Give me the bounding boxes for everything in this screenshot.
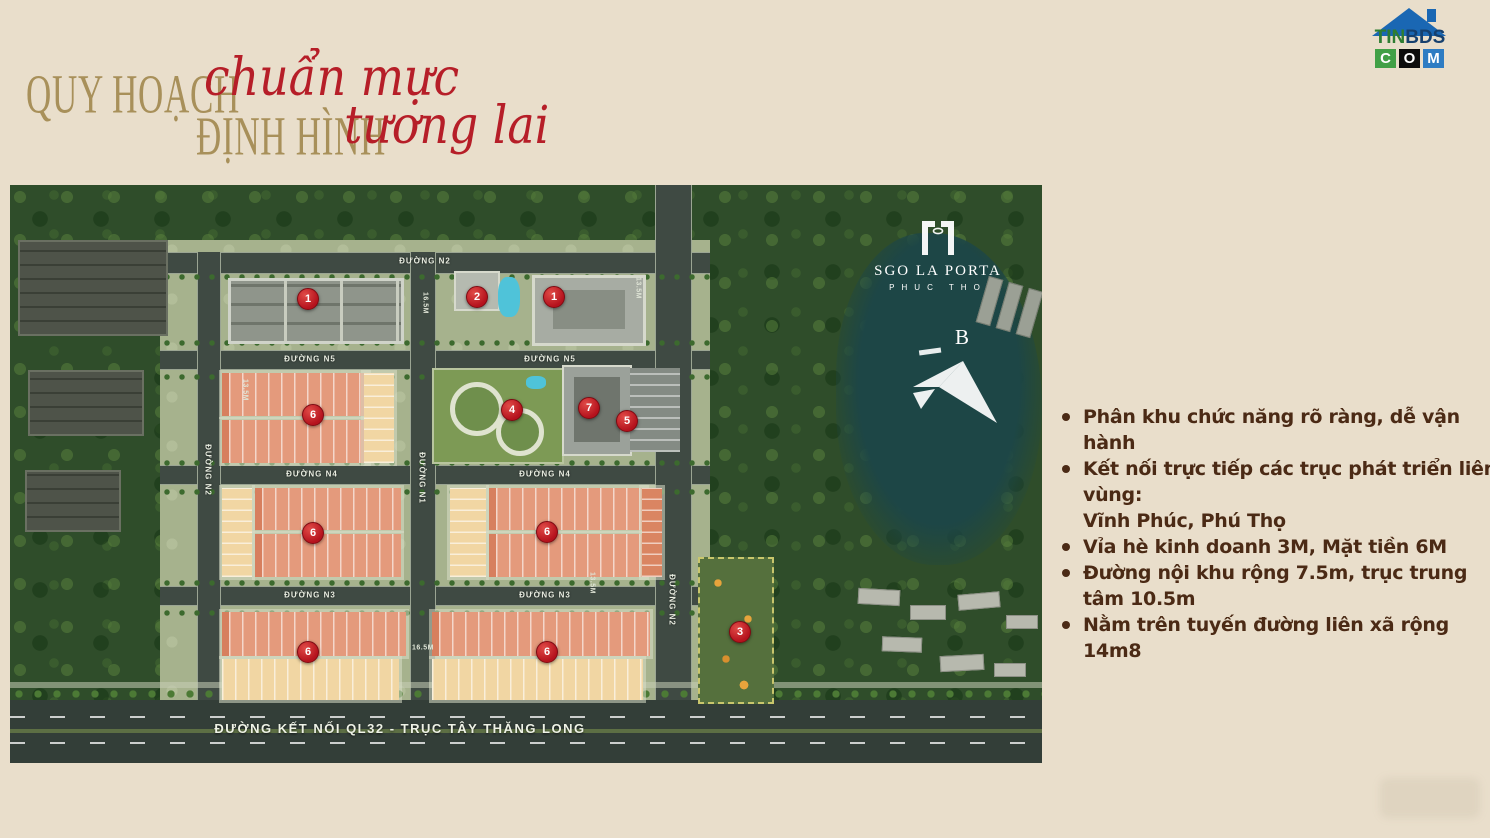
tinbds-m: M <box>1423 49 1444 68</box>
zone-marker: 6 <box>297 641 319 663</box>
feature-text: Nằm trên tuyến đường liên xã rộng 14m8 <box>1083 612 1490 664</box>
feature-text: Đường nội khu rộng 7.5m, trục trung tâm … <box>1083 560 1490 612</box>
tinbds-logo[interactable]: TINBDS C O M <box>1370 6 1450 78</box>
bullet-icon <box>1062 569 1070 577</box>
markers-layer: 121647566663 <box>10 185 1042 763</box>
page: { "header": { "title_line1_gold": "QUY H… <box>0 0 1490 838</box>
feature-text: Vỉa hè kinh doanh 3M, Mặt tiền 6M <box>1083 534 1447 560</box>
zone-marker: 6 <box>302 404 324 426</box>
zone-marker: 6 <box>302 522 324 544</box>
feature-item: Kết nối trực tiếp các trục phát triển li… <box>1062 456 1490 534</box>
tinbds-tin: TIN <box>1375 27 1406 48</box>
zone-marker: 4 <box>501 399 523 421</box>
feature-item: Phân khu chức năng rõ ràng, dễ vận hành <box>1062 404 1490 456</box>
feature-item: Vỉa hè kinh doanh 3M, Mặt tiền 6M <box>1062 534 1490 560</box>
bullet-icon <box>1062 621 1070 629</box>
tinbds-c: C <box>1375 49 1396 68</box>
zone-marker: 1 <box>297 288 319 310</box>
zone-marker: 2 <box>466 286 488 308</box>
feature-text: Kết nối trực tiếp các trục phát triển li… <box>1083 456 1490 534</box>
zone-marker: 6 <box>536 641 558 663</box>
zone-marker: 1 <box>543 286 565 308</box>
zone-marker: 6 <box>536 521 558 543</box>
tinbds-o: O <box>1399 49 1420 68</box>
master-plan-map: SGO LA PORTA PHUC THO B ĐƯỜNG KẾT NỐI QL… <box>10 185 1042 763</box>
tinbds-com-row: C O M <box>1375 49 1444 68</box>
zone-marker: 5 <box>616 410 638 432</box>
watermark <box>1380 778 1480 818</box>
bullet-icon <box>1062 465 1070 473</box>
tinbds-wordmark: TINBDS <box>1370 28 1450 48</box>
feature-item: Nằm trên tuyến đường liên xã rộng 14m8 <box>1062 612 1490 664</box>
bullet-icon <box>1062 543 1070 551</box>
zone-marker: 7 <box>578 397 600 419</box>
feature-text: Phân khu chức năng rõ ràng, dễ vận hành <box>1083 404 1490 456</box>
bullet-icon <box>1062 413 1070 421</box>
tinbds-bds: BDS <box>1405 27 1445 48</box>
feature-item: Đường nội khu rộng 7.5m, trục trung tâm … <box>1062 560 1490 612</box>
page-title-line2-red: tương lai <box>344 96 549 156</box>
features-list: Phân khu chức năng rõ ràng, dễ vận hànhK… <box>1062 404 1490 664</box>
zone-marker: 3 <box>729 621 751 643</box>
